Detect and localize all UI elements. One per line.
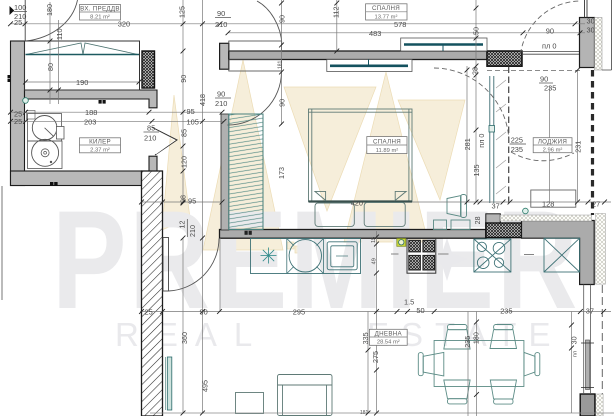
svg-text:112: 112 bbox=[332, 7, 341, 18]
svg-text:28: 28 bbox=[471, 67, 480, 75]
svg-text:30: 30 bbox=[570, 336, 579, 344]
svg-text:28: 28 bbox=[473, 216, 482, 224]
svg-text:90: 90 bbox=[546, 27, 554, 36]
svg-text:98: 98 bbox=[179, 195, 188, 203]
svg-text:105: 105 bbox=[187, 118, 199, 127]
svg-text:2.37 m²: 2.37 m² bbox=[90, 148, 110, 154]
svg-text:320: 320 bbox=[118, 20, 130, 29]
svg-text:90: 90 bbox=[217, 89, 225, 98]
svg-text:95: 95 bbox=[188, 197, 196, 206]
svg-text:37: 37 bbox=[586, 307, 594, 316]
svg-text:190: 190 bbox=[76, 78, 88, 87]
svg-text:203: 203 bbox=[84, 117, 96, 126]
svg-text:210: 210 bbox=[215, 99, 227, 108]
svg-text:281: 281 bbox=[463, 138, 472, 150]
svg-text:ДНЕВНА: ДНЕВНА bbox=[375, 331, 403, 338]
svg-text:235: 235 bbox=[511, 145, 523, 154]
svg-text:ВХ. ПРЕДДВ: ВХ. ПРЕДДВ bbox=[80, 6, 120, 13]
svg-text:90: 90 bbox=[179, 75, 188, 83]
svg-text:173: 173 bbox=[277, 167, 286, 179]
svg-text:КИЛЕР: КИЛЕР bbox=[89, 139, 111, 146]
svg-text:188: 188 bbox=[85, 108, 97, 117]
svg-text:11.89 m²: 11.89 m² bbox=[376, 148, 399, 154]
svg-text:135: 135 bbox=[472, 165, 481, 177]
svg-text:8.21 m²: 8.21 m² bbox=[90, 15, 110, 21]
svg-text:1.5: 1.5 bbox=[404, 298, 414, 307]
svg-text:128: 128 bbox=[542, 200, 554, 209]
svg-text:483: 483 bbox=[369, 29, 381, 38]
svg-text:25: 25 bbox=[14, 18, 22, 27]
svg-text:28.54 m²: 28.54 m² bbox=[377, 340, 400, 346]
svg-text:418: 418 bbox=[198, 94, 207, 106]
svg-text:420: 420 bbox=[351, 199, 363, 208]
svg-text:360: 360 bbox=[180, 332, 189, 344]
svg-text:25: 25 bbox=[145, 308, 153, 317]
svg-text:30: 30 bbox=[587, 17, 595, 26]
svg-text:90: 90 bbox=[278, 15, 287, 23]
svg-text:15: 15 bbox=[371, 237, 377, 243]
svg-text:13.77 m²: 13.77 m² bbox=[375, 14, 398, 20]
svg-text:СПАЛНЯ: СПАЛНЯ bbox=[373, 138, 401, 145]
svg-text:50: 50 bbox=[416, 306, 424, 315]
svg-text:85: 85 bbox=[180, 129, 189, 137]
svg-text:2.96 m²: 2.96 m² bbox=[543, 147, 563, 153]
svg-text:125: 125 bbox=[178, 6, 187, 18]
svg-text:50: 50 bbox=[472, 27, 481, 35]
svg-text:210: 210 bbox=[215, 20, 227, 29]
svg-text:пл 0: пл 0 bbox=[542, 42, 556, 51]
svg-text:181: 181 bbox=[278, 60, 284, 69]
svg-text:90: 90 bbox=[200, 308, 208, 317]
svg-text:90: 90 bbox=[540, 75, 548, 84]
svg-text:495: 495 bbox=[201, 380, 210, 392]
svg-text:578: 578 bbox=[394, 20, 406, 29]
svg-text:37: 37 bbox=[492, 202, 500, 211]
svg-text:СПАЛНЯ: СПАЛНЯ bbox=[372, 5, 400, 12]
svg-text:231: 231 bbox=[574, 141, 583, 153]
svg-text:110: 110 bbox=[55, 29, 64, 40]
svg-text:30: 30 bbox=[587, 26, 595, 35]
svg-text:REAL: REAL bbox=[115, 316, 269, 353]
svg-text:180: 180 bbox=[472, 332, 481, 344]
svg-text:295: 295 bbox=[293, 308, 305, 317]
svg-text:210: 210 bbox=[188, 225, 197, 237]
svg-text:27: 27 bbox=[592, 200, 600, 209]
svg-text:80: 80 bbox=[46, 63, 55, 71]
svg-text:90: 90 bbox=[217, 9, 225, 18]
svg-text:225: 225 bbox=[511, 136, 523, 145]
svg-text:120: 120 bbox=[180, 156, 189, 168]
svg-text:95: 95 bbox=[187, 107, 195, 116]
svg-text:100: 100 bbox=[14, 3, 26, 12]
svg-text:12: 12 bbox=[178, 221, 187, 229]
svg-text:235: 235 bbox=[500, 307, 512, 316]
svg-text:пл 0: пл 0 bbox=[477, 134, 486, 148]
svg-text:335: 335 bbox=[361, 332, 370, 344]
svg-text:210: 210 bbox=[144, 134, 156, 143]
svg-text:25: 25 bbox=[14, 117, 22, 126]
svg-text:ЛОДЖИЯ: ЛОДЖИЯ bbox=[538, 138, 567, 145]
svg-text:49: 49 bbox=[372, 258, 378, 264]
svg-text:85: 85 bbox=[147, 124, 155, 133]
svg-text:пл: пл bbox=[573, 351, 579, 357]
svg-text:180: 180 bbox=[45, 4, 54, 16]
svg-text:275: 275 bbox=[371, 351, 380, 363]
svg-text:235: 235 bbox=[544, 84, 556, 93]
svg-text:90: 90 bbox=[278, 99, 287, 107]
